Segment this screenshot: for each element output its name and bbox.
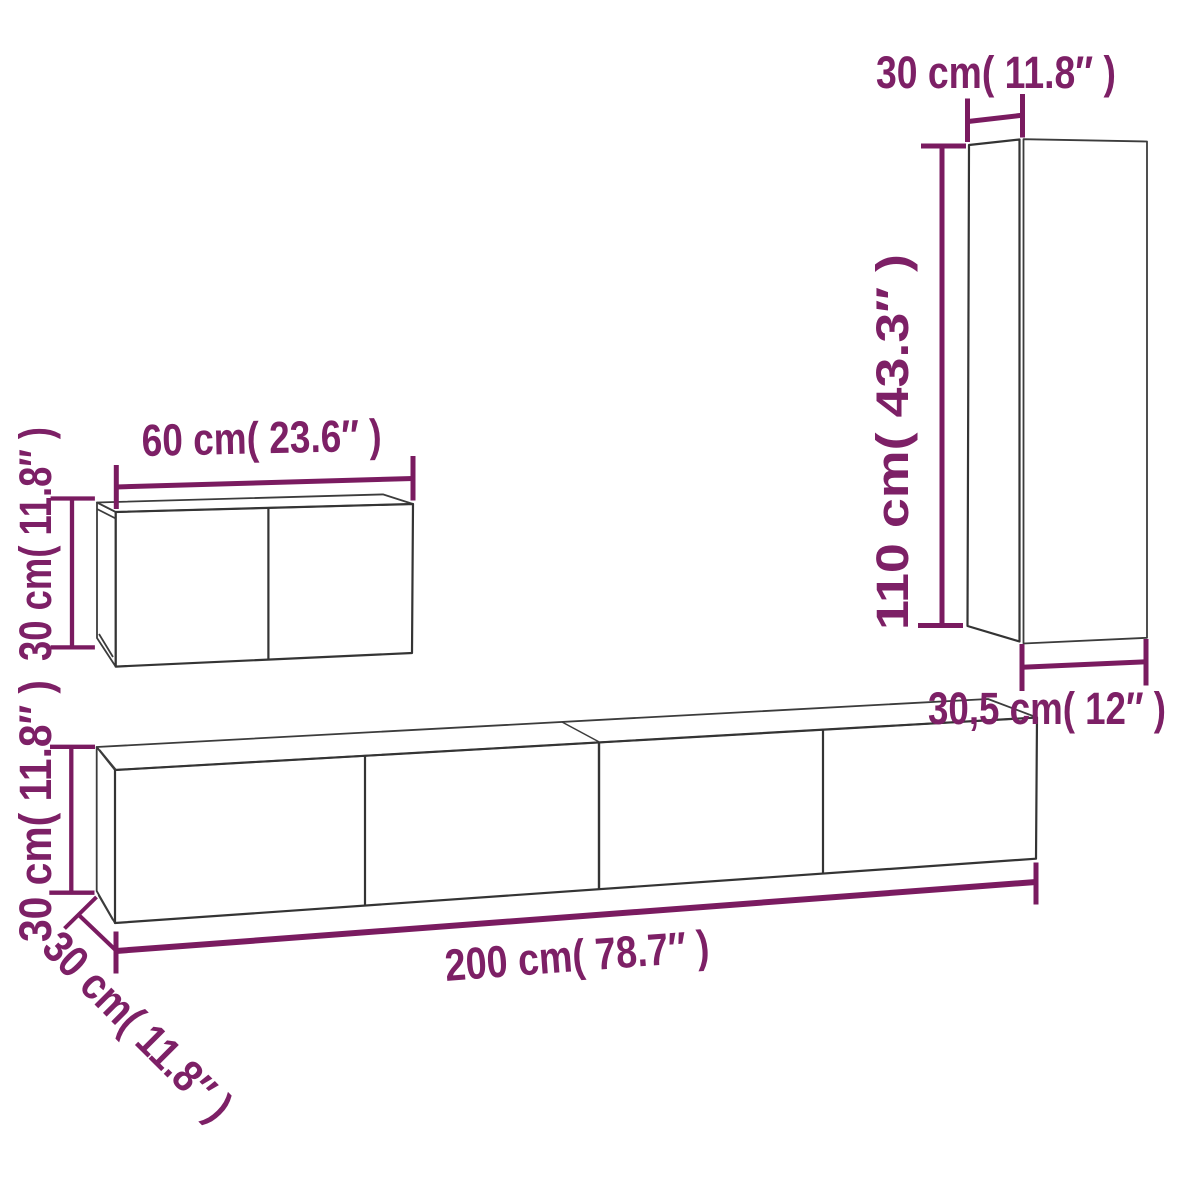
svg-text:30 cm( 11.8″ ): 30 cm( 11.8″ ) [10, 427, 61, 661]
svg-text:110 cm( 43.3″ ): 110 cm( 43.3″ ) [867, 254, 918, 630]
svg-text:60 cm( 23.6″ ): 60 cm( 23.6″ ) [141, 410, 382, 466]
svg-text:30 cm( 11.8″ ): 30 cm( 11.8″ ) [10, 680, 61, 942]
svg-text:30,5 cm( 12″ ): 30,5 cm( 12″ ) [928, 683, 1166, 734]
svg-text:30 cm( 11.8″ ): 30 cm( 11.8″ ) [876, 47, 1116, 98]
